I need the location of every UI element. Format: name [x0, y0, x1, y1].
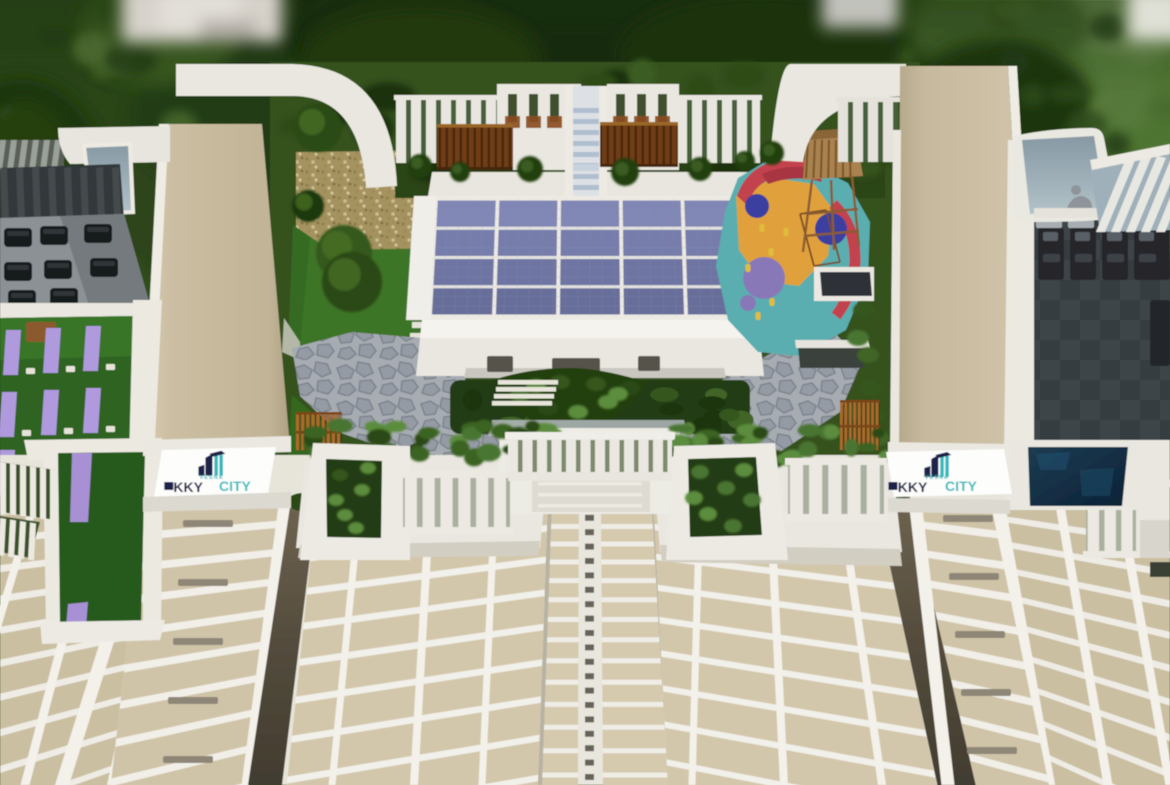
- svg-text:CITY: CITY: [219, 478, 252, 494]
- svg-text:KKY: KKY: [898, 479, 928, 495]
- svg-text:KKY: KKY: [173, 479, 203, 495]
- svg-text:CITY: CITY: [945, 478, 978, 494]
